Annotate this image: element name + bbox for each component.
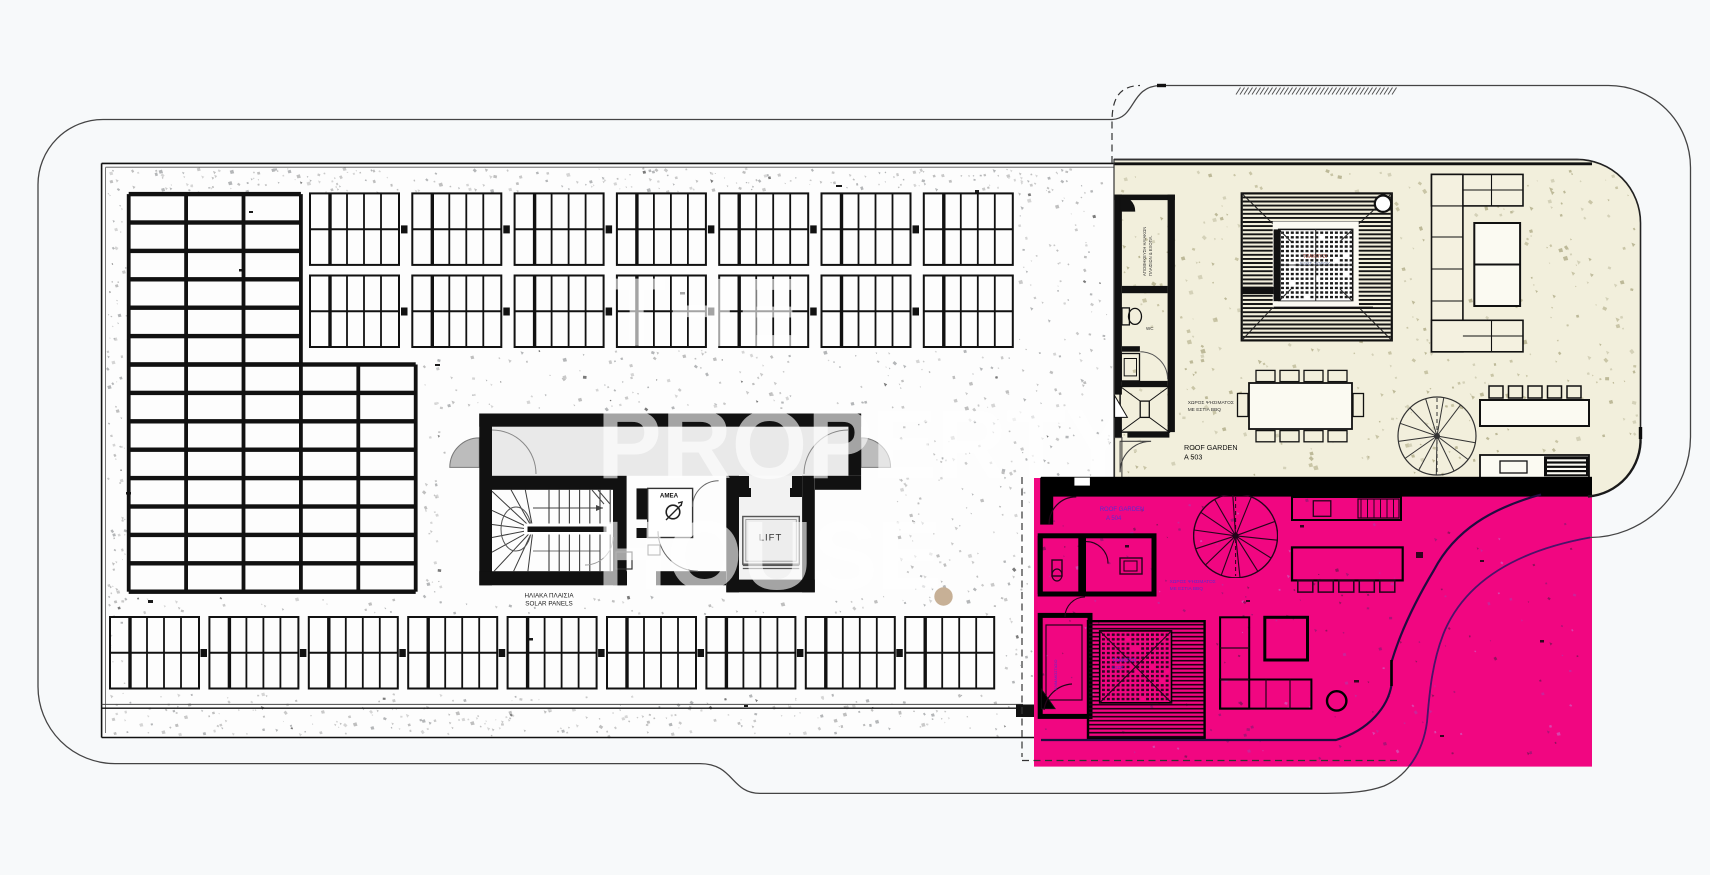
svg-text:A 504: A 504 — [1106, 516, 1122, 522]
svg-text:ΤΖΑΚΟΥΖΙ: ΤΖΑΚΟΥΖΙ — [1112, 658, 1136, 664]
svg-text:ΗΛΙΑΚΑ ΠΛΑΙΣΙΑ: ΗΛΙΑΚΑ ΠΛΑΙΣΙΑ — [524, 593, 574, 600]
svg-text:ΕΞΩΤ. ΧΩΡΟΥ: ΕΞΩΤ. ΧΩΡΟΥ — [1300, 261, 1330, 266]
svg-text:ΧΩΡΟΣ ΨΗΣΙΜΑΤΟΣ: ΧΩΡΟΣ ΨΗΣΙΜΑΤΟΣ — [1188, 400, 1234, 406]
svg-text:ΠΛΑΙΣΙΩΝ & ΕΞΟΠΛ.: ΠΛΑΙΣΙΩΝ & ΕΞΟΠΛ. — [1148, 235, 1153, 276]
svg-text:ΧΩΡΟΣ ΨΗΣΙΜΑΤΟΣ: ΧΩΡΟΣ ΨΗΣΙΜΑΤΟΣ — [1170, 579, 1216, 585]
svg-text:A 503: A 503 — [1184, 453, 1202, 462]
svg-text:ΤΖΑΚΟΥΖΙ: ΤΖΑΚΟΥΖΙ — [1303, 254, 1327, 260]
svg-text:SOLAR PANELS: SOLAR PANELS — [525, 601, 572, 608]
svg-text:ROOF GARDEN: ROOF GARDEN — [1184, 443, 1238, 452]
svg-text:ΜΕ ΕΣΤΙΑ BBQ: ΜΕ ΕΣΤΙΑ BBQ — [1188, 407, 1222, 413]
svg-text:WC: WC — [1146, 326, 1154, 331]
svg-text:HOUSE: HOUSE — [597, 501, 942, 610]
svg-text:THE: THE — [607, 258, 801, 367]
svg-text:ΚΛΙΜΑΚΟΣΤΑΣΙΟ: ΚΛΙΜΑΚΟΣΤΑΣΙΟ — [1054, 659, 1058, 690]
svg-text:ROOF GARDEN: ROOF GARDEN — [1100, 507, 1145, 513]
svg-text:ΕΞΩΤ.: ΕΞΩΤ. — [1112, 665, 1125, 670]
svg-text:ΑΠΟΘΗΚΕΥΣΗ ΗΛΙΑΚΩΝ: ΑΠΟΘΗΚΕΥΣΗ ΗΛΙΑΚΩΝ — [1142, 227, 1147, 276]
svg-text:ΜΕ ΕΣΤΙΑ BBQ: ΜΕ ΕΣΤΙΑ BBQ — [1170, 586, 1204, 592]
